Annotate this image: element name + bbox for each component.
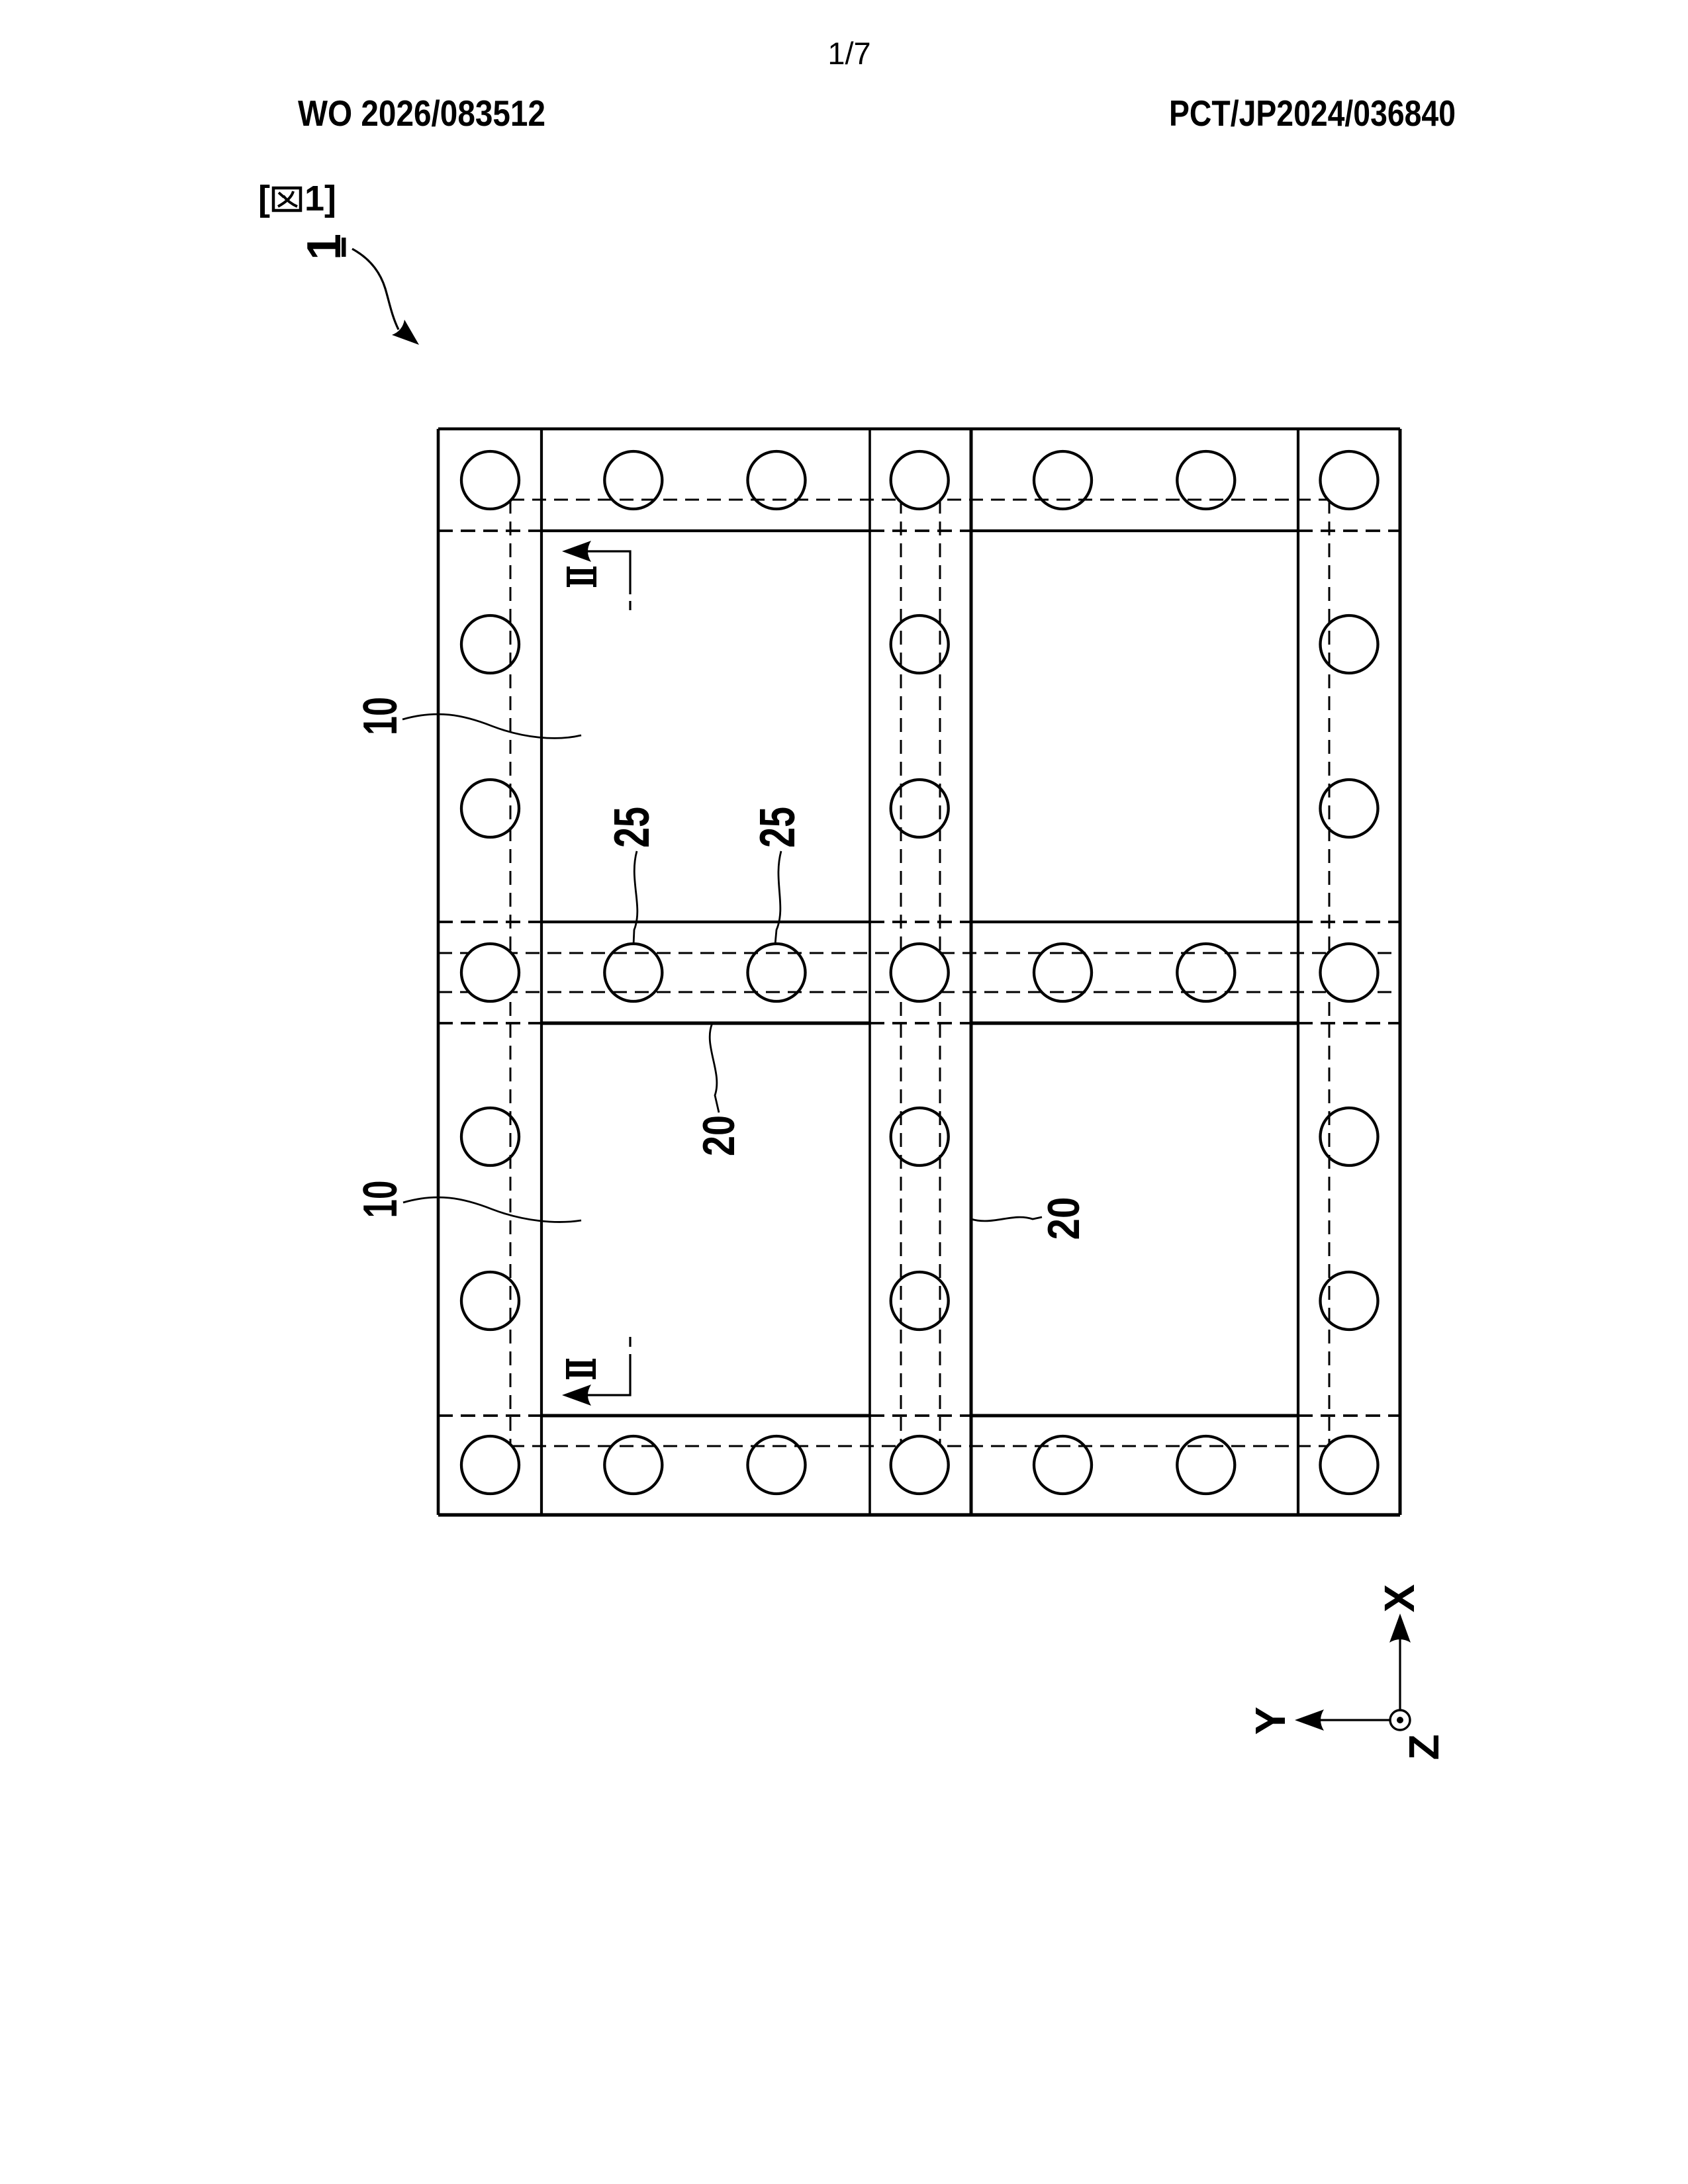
svg-text:10: 10 [354,697,407,735]
svg-text:WO 2026/083512: WO 2026/083512 [298,93,545,134]
svg-text:PCT/JP2024/036840: PCT/JP2024/036840 [1169,93,1456,134]
svg-text:25: 25 [749,807,805,848]
svg-text:X: X [1376,1584,1423,1612]
svg-text:1]: 1] [305,179,336,218]
svg-text:10: 10 [354,1181,407,1218]
svg-text:25: 25 [604,807,659,848]
svg-text:20: 20 [1039,1197,1089,1240]
svg-text:1/7: 1/7 [827,36,870,71]
svg-text:Z: Z [1400,1734,1448,1760]
svg-text:Y: Y [1246,1707,1294,1735]
svg-text:[: [ [258,179,270,218]
svg-text:20: 20 [694,1115,744,1156]
